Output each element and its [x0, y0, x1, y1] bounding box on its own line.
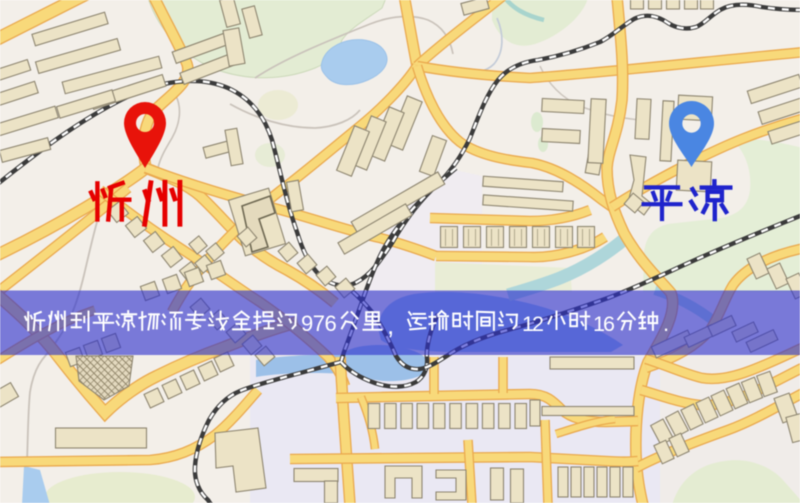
- svg-text:.: .: [663, 311, 669, 336]
- svg-text:12: 12: [522, 312, 543, 336]
- svg-text:976: 976: [301, 311, 336, 336]
- svg-text:,: ,: [387, 310, 394, 340]
- svg-text:16: 16: [593, 312, 615, 336]
